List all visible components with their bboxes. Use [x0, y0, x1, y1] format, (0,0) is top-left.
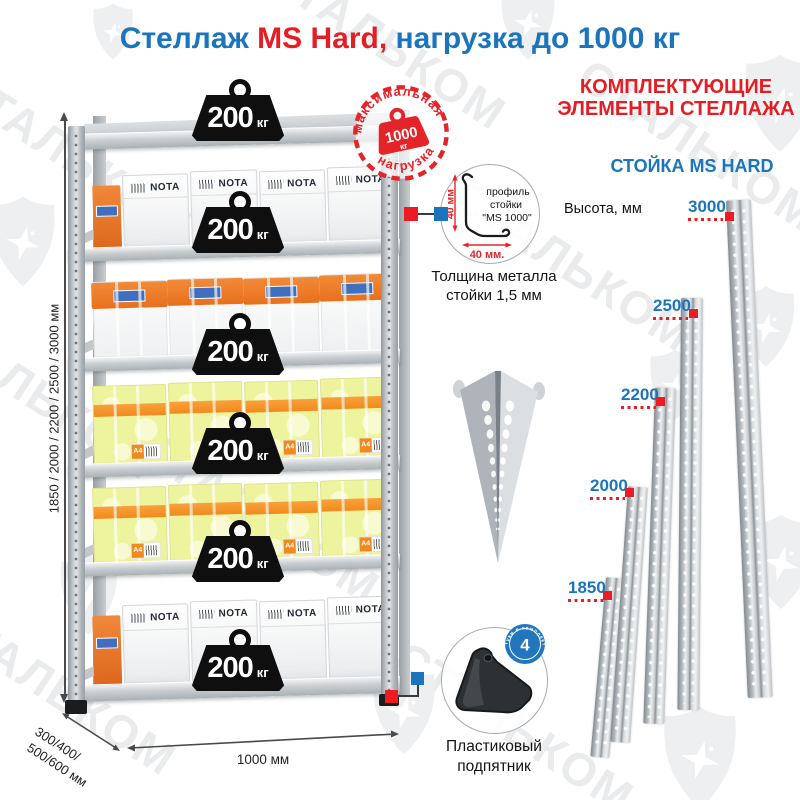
height-dimension-line: [64, 120, 66, 696]
barcode-icon: [337, 606, 352, 615]
box-label: [96, 205, 118, 217]
upright-post-2500: [677, 298, 703, 710]
profile-label: профиль: [486, 186, 530, 198]
leader-dots: [653, 317, 688, 320]
post-height-label: 1850: [568, 578, 606, 598]
page-title: Стеллаж MS Hard, нагрузка до 1000 кг: [0, 22, 800, 56]
components-heading: КОМПЛЕКТУЮЩИЕ ЭЛЕМЕНТЫ СТЕЛЛАЖА: [552, 76, 800, 120]
callout-line: [398, 695, 419, 697]
a4-label: A4: [132, 445, 144, 459]
corner-post-image: [448, 358, 548, 568]
box-brand-label: NOTA: [218, 608, 248, 620]
leader-dots: [621, 406, 656, 409]
box-brand-label: NOTA: [218, 178, 248, 190]
leader-dots: [590, 497, 625, 500]
barcode-icon: [146, 446, 158, 456]
barcode-icon: [131, 183, 146, 192]
paper-box-orange-lid: [92, 280, 168, 362]
weight-badge: 200кг: [190, 629, 286, 691]
paper-pack-yellow: A4: [92, 384, 168, 468]
leader-marker: [689, 309, 698, 318]
svg-text:4: 4: [520, 636, 530, 655]
a4-label: A4: [132, 544, 144, 558]
upright-post-3000: [726, 199, 773, 698]
barcode-icon: [268, 610, 283, 619]
title-part-blue: нагрузка до 1000 кг: [387, 22, 680, 55]
infographic-canvas: СТАЛЬКОМ СТАЛЬКОМ СТАЛЬКОМ СТАЛЬКОМ СТАЛ…: [0, 0, 800, 800]
title-part-red: MS Hard,: [257, 22, 387, 55]
foot-caption: Пластиковый подпятник: [428, 737, 560, 777]
arrow-up-icon: [60, 112, 68, 121]
weight-badge: 200кг: [190, 191, 286, 253]
weight-badge: 200кг: [190, 412, 286, 474]
leader-marker: [625, 488, 634, 497]
rack-front-post: [381, 122, 398, 704]
a4-label: A4: [360, 438, 372, 452]
callout-marker-red: [385, 690, 398, 703]
box-brand-label: NOTA: [150, 612, 180, 624]
post-height-label: 2200: [621, 385, 659, 405]
profile-diagram-circle: 40 мм 40 мм. профиль стойки "MS 1000": [440, 164, 540, 264]
paper-pack-yellow: A4: [92, 486, 168, 567]
quantity-badge: 4 штуки в комплекте: [504, 623, 546, 665]
leader-dots: [568, 599, 604, 602]
weight-badge: 200кг: [190, 520, 286, 582]
width-dimension-label: 1000 мм: [237, 752, 289, 767]
height-dimension-label: 1850 / 2000 / 2200 / 2500 / 3000 мм: [47, 259, 62, 559]
barcode-icon: [199, 610, 214, 619]
callout-line: [418, 213, 434, 215]
post-height-label: 2500: [653, 296, 691, 316]
weight-badge: 200кг: [190, 79, 286, 141]
barcode-icon: [146, 545, 158, 555]
paper-box: NOTA: [122, 603, 191, 687]
callout-marker-red: [404, 207, 418, 221]
height-axis-label: Высота, мм: [564, 201, 642, 217]
barcode-icon: [131, 613, 146, 622]
barcode-icon: [199, 180, 214, 189]
barcode-icon: [298, 442, 310, 452]
box-orange-end: [92, 185, 122, 252]
leader-dots: [688, 218, 723, 221]
post-profile-diagram: 40 мм 40 мм. профиль стойки "MS 1000": [441, 165, 539, 263]
thickness-caption: Толщина металла стойки 1,5 мм: [426, 267, 562, 305]
leader-marker: [725, 212, 734, 221]
post-height-label: 3000: [688, 197, 726, 217]
weight-badge: 200кг: [190, 313, 286, 375]
leader-marker: [656, 397, 665, 406]
paper-box: NOTA: [122, 173, 191, 251]
leader-marker: [603, 591, 612, 600]
box-orange-end: [92, 615, 122, 688]
shield-logo-icon: [658, 704, 742, 800]
box-brand-label: NOTA: [150, 182, 180, 194]
barcode-icon: [298, 541, 310, 551]
max-load-stamp: максимальная нагрузка 1000 кг: [347, 79, 455, 187]
post-subheading: СТОЙКА MS HARD: [584, 156, 800, 177]
profile-dim-horizontal: 40 мм.: [470, 249, 505, 261]
post-height-label: 2000: [590, 476, 628, 496]
barcode-icon: [268, 180, 283, 189]
title-part-blue: Стеллаж: [120, 22, 257, 55]
profile-label: "MS 1000": [482, 212, 532, 224]
rack-front-post: [68, 126, 85, 710]
upright-post-2200: [643, 388, 676, 725]
box-brand-label: NOTA: [287, 608, 317, 620]
box-brand-label: NOTA: [287, 178, 317, 190]
callout-marker-blue: [411, 672, 424, 685]
rack-back-post: [399, 110, 410, 696]
a4-label: A4: [359, 537, 371, 551]
base-dimensions: 1000 мм 300/400/ 500/600 мм: [0, 690, 430, 800]
callout-marker-blue: [434, 207, 448, 221]
profile-label: стойки: [490, 199, 522, 211]
box-label: [96, 637, 118, 649]
